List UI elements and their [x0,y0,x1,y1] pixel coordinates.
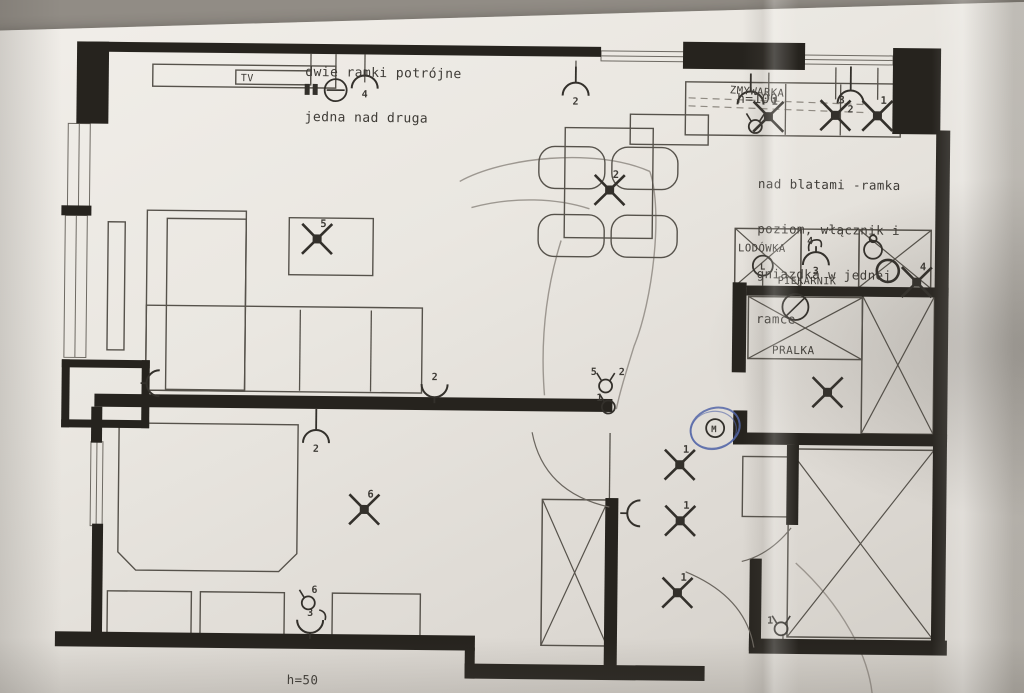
light-center [823,388,832,397]
wall [892,48,941,134]
note-line: gniazdka w jednej [757,266,900,283]
socket-circuit-number: 2 [847,105,854,116]
ceiling-light-symbol [665,506,695,536]
detail-line [785,84,786,135]
furniture [146,210,247,391]
switch-circuit-number: 1 [767,616,774,627]
note-line: dwie ramki potrójne [305,65,462,82]
note-kitchen-sockets: nad blatami -ramka poziom, włącznik i gn… [756,146,902,358]
ceiling-light-symbol [302,224,332,254]
note-bedroom-sockets: h=50 ramka poziom, włącznik i gniazdka [285,642,438,693]
crossed-box-diag [787,449,934,639]
light-circuit-number: 6 [367,488,374,500]
crossed-box [541,499,609,646]
furniture [107,222,125,350]
furniture [685,82,901,137]
light-circuit-number: 1 [683,500,690,512]
furniture [166,218,247,390]
wall [465,664,705,682]
wall [62,359,150,368]
light-center [831,111,840,120]
note-line: nad blatami -ramka [758,176,901,193]
circuit-number: 2 [619,367,626,378]
circuit-number: 5 [591,367,598,378]
furniture [146,305,423,393]
light-circuit-number: 1 [881,95,888,107]
switch-symbol [597,373,615,393]
furniture [200,592,284,636]
window-pane-line [803,60,893,61]
socket-circuit-number: 2 [432,372,439,383]
socket-arc [297,620,323,633]
window-pane-line [75,215,76,357]
pencil-scribble [794,563,873,693]
switch-body [599,379,612,392]
crossed-box-diag [541,499,609,646]
wall [61,419,149,428]
light-center [313,234,322,243]
note-line: jedna nad druga [305,110,462,127]
wall [94,394,612,412]
ceiling-light-symbol [862,101,892,131]
wall [91,407,102,443]
socket-arc [627,500,640,526]
furniture [742,456,789,516]
chair [538,214,604,257]
door-swing-arc [531,432,610,507]
detail-line [300,310,301,391]
window-pane-line [601,56,685,57]
furniture [107,591,191,635]
socket-circuit-number: 2 [313,444,320,455]
circuit-number: 1 [596,393,603,404]
door-swing-arc [742,527,791,562]
light-center [675,460,684,469]
switch-stroke [610,373,615,381]
wall [732,282,747,372]
wall [786,445,799,525]
wall [604,498,619,668]
pencil-scribble [543,240,561,395]
ceiling-light-symbol [820,100,850,130]
note-line: ramce [756,311,899,328]
floor-plan-photo: 521314611122243231ML52164TVZMYWARKALODÓW… [0,0,1024,693]
chair [539,146,605,189]
light-center [673,588,682,597]
socket-circuit-number: 2 [572,97,579,108]
light-center [912,278,921,287]
wall [931,130,950,654]
hook-symbol [319,610,326,620]
wall [76,41,109,123]
light-circuit-number: 4 [920,261,927,273]
switch-stroke [597,373,602,381]
socket-symbol [563,67,589,96]
socket-symbol [303,409,329,443]
pencil-scribble [471,199,589,209]
light-circuit-number: 1 [683,444,690,456]
chair [611,215,677,258]
light-circuit-number: 2 [613,169,620,181]
furniture [630,114,708,145]
light-center [873,111,882,120]
wall [749,559,762,651]
wall [61,205,91,215]
socket-arc [303,430,329,443]
wall [91,524,103,636]
crossed-box [787,449,934,639]
light-center [360,505,369,514]
note-triple-frames: dwie ramki potrójne jedna nad druga [304,35,462,157]
detail-line [609,433,610,505]
note-counter-height: h=100 [736,62,778,138]
ceiling-light-symbol [665,450,695,480]
socket-symbol [620,500,640,526]
window-pane-line [96,442,97,526]
bed [118,423,299,572]
furniture [332,593,420,637]
note-line: poziom, włącznik i [757,221,900,238]
light-circuit-number: 5 [320,218,327,230]
detail-line [371,311,372,392]
chair [612,147,678,190]
wall [749,638,947,655]
ceiling-light-symbol [662,578,692,608]
socket-arc [563,83,589,96]
circuit-number: 6 [311,585,318,596]
switch-stroke [299,590,304,598]
ceiling-light-symbol [349,494,379,524]
ceiling-light-symbol [594,175,624,205]
ceiling-light-symbol [812,377,842,407]
light-center [605,185,614,194]
note-line: h=50 [287,672,438,689]
switch-body [774,622,787,635]
light-center [676,516,685,525]
window-pane-line [78,123,79,207]
note-line: h=100 [737,92,778,108]
wall [733,432,947,446]
appliance-label: TV [241,73,254,84]
fan-letter: M [711,425,717,435]
light-circuit-number: 1 [681,572,688,584]
wall [61,359,70,427]
plan-root: 521314611122243231ML52164TVZMYWARKALODÓW… [54,35,953,693]
door-swing-arc [685,572,755,648]
socket-arc [421,384,447,397]
